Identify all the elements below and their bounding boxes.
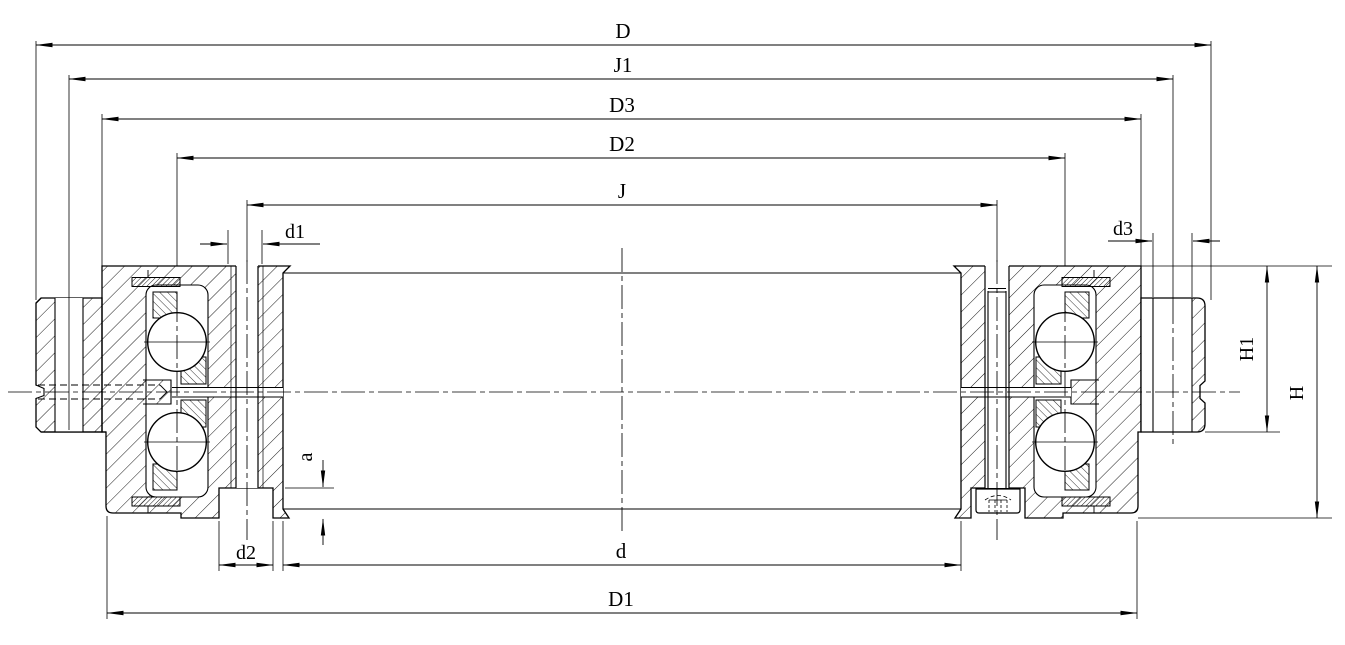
dim-label-H: H: [1286, 386, 1308, 400]
drawing-canvas: D J1 D3 D2 J d1 d3 d2 d D1 H1 H a: [0, 0, 1345, 645]
bearing-engineering-drawing: D J1 D3 D2 J d1 d3 d2 d D1 H1 H a: [0, 0, 1345, 645]
dim-label-D1: D1: [608, 587, 634, 611]
dim-label-d2: d2: [236, 542, 256, 564]
dim-label-D2: D2: [609, 132, 635, 156]
left-clamp-flange: [34, 298, 106, 432]
right-bearing-section: [954, 264, 1141, 518]
screw-head: [976, 489, 1020, 513]
left-bearing-section: [102, 264, 290, 518]
dim-label-D3: D3: [609, 93, 635, 117]
dim-label-d: d: [616, 539, 627, 563]
dim-label-J1: J1: [614, 53, 633, 77]
dim-label-D: D: [615, 19, 630, 43]
dim-label-a: a: [295, 452, 317, 461]
dim-label-H1: H1: [1236, 337, 1258, 361]
dim-label-J: J: [618, 179, 626, 203]
dim-label-d3: d3: [1113, 218, 1133, 240]
dim-label-d1: d1: [285, 221, 305, 243]
